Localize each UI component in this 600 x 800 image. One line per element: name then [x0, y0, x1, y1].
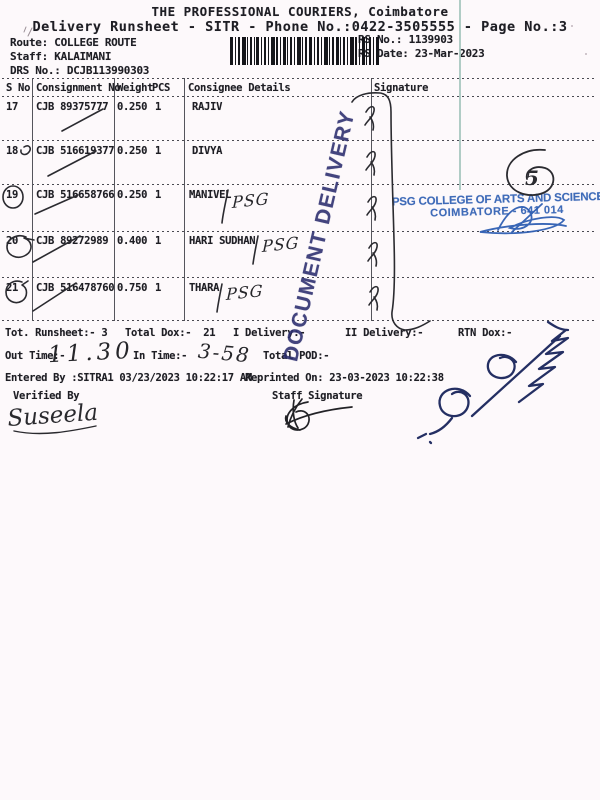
cell-pcs: 1	[155, 189, 161, 201]
row-divider	[2, 230, 597, 232]
college-stamp-line2: COIMBATORE - 641 014	[430, 204, 582, 220]
column-line	[371, 78, 372, 321]
row-divider	[2, 183, 597, 185]
college-stamp: PSG COLLEGE OF ARTS AND SCIENCE COIMBATO…	[392, 192, 583, 221]
drs-no-field: DRS No.: DCJB113990303	[10, 64, 149, 77]
ii-delivery: II Delivery:-	[345, 327, 423, 339]
col-header-consignee: Consignee Details	[188, 82, 290, 94]
cell-consignee: DIVYA	[192, 145, 222, 157]
col-header-weight: Weight	[117, 82, 153, 94]
cell-consignee: THARA	[189, 282, 219, 294]
page-mark-circle	[507, 150, 553, 195]
cell-pcs: 1	[155, 101, 161, 113]
verified-by-label: Verified By	[13, 390, 79, 402]
in-time-handwritten: 3-58	[197, 339, 252, 368]
svg-text:Suseela: Suseela	[7, 400, 99, 432]
staff-signature-scribble	[286, 399, 352, 430]
cell-sno: 20	[6, 235, 18, 247]
cell-pcs: 1	[155, 282, 161, 294]
col-header-consignment: Consignment No	[36, 82, 120, 94]
handwritten-note: PSG	[232, 189, 270, 212]
cell-consignment: CJB 516619377	[36, 145, 114, 157]
handwritten-note: PSG	[262, 233, 300, 256]
cell-consignment: CJB 89272989	[36, 235, 108, 247]
staff-signature-label: Staff Signature	[272, 390, 362, 402]
scan-artifact	[585, 53, 587, 55]
cell-consignment: CJB 516658766	[36, 189, 114, 201]
cell-weight: 0.250	[117, 101, 147, 113]
column-line	[184, 78, 185, 321]
total-runsheet: Tot. Runsheet:- 3	[5, 327, 107, 339]
cell-weight: 0.750	[117, 282, 147, 294]
pen-circle-18	[21, 146, 30, 155]
cell-consignee: MANIVEL	[189, 189, 231, 201]
table-border-top	[2, 77, 597, 79]
cell-sno: 19	[6, 189, 18, 201]
page-mark-number: 5	[525, 166, 539, 190]
total-dox: Total Dox:- 21	[125, 327, 215, 339]
runsheet-subtitle: Delivery Runsheet - SITR - Phone No.:042…	[0, 19, 600, 35]
cell-consignment: CJB 89375777	[36, 101, 108, 113]
route-field: Route: COLLEGE ROUTE	[10, 36, 136, 49]
cell-sno: 18	[6, 145, 18, 157]
cell-pcs: 1	[155, 235, 161, 247]
delivery-runsheet-document: THE PROFESSIONAL COURIERS, Coimbatore De…	[0, 0, 600, 800]
rtn-dox: RTN Dox:-	[458, 327, 512, 339]
cell-weight: 0.400	[117, 235, 147, 247]
staff-field: Staff: KALAIMANI	[10, 50, 111, 63]
row-divider	[2, 95, 597, 97]
out-time-handwritten: 11.30	[47, 338, 134, 368]
pen-row-mark	[368, 243, 377, 266]
cell-consignment: CJB 516478760	[36, 282, 114, 294]
cell-consignee: RAJIV	[192, 101, 222, 113]
in-time-label: In Time:-	[133, 350, 187, 362]
reprinted-on: Reprinted On: 23-03-2023 10:22:38	[245, 372, 444, 384]
cell-pcs: 1	[155, 145, 161, 157]
cell-weight: 0.250	[117, 189, 147, 201]
col-header-sno: S No	[6, 82, 30, 94]
pen-row-mark	[365, 107, 374, 130]
col-header-signature: Signature	[374, 82, 428, 94]
col-header-pcs: PCS	[152, 82, 170, 94]
barcode	[230, 37, 382, 65]
cell-sno: 21	[6, 282, 18, 294]
handwritten-note: PSG	[226, 281, 264, 304]
column-line	[32, 78, 33, 321]
cell-consignee: HARI SUDHAN	[189, 235, 255, 247]
verified-signature: Suseela	[7, 400, 99, 434]
entered-by: Entered By :SITRA1 03/23/2023 10:22:17 A…	[5, 372, 252, 384]
company-title: THE PROFESSIONAL COURIERS, Coimbatore	[0, 4, 600, 19]
cell-sno: 17	[6, 101, 18, 113]
row-divider	[2, 139, 597, 141]
cell-weight: 0.250	[117, 145, 147, 157]
